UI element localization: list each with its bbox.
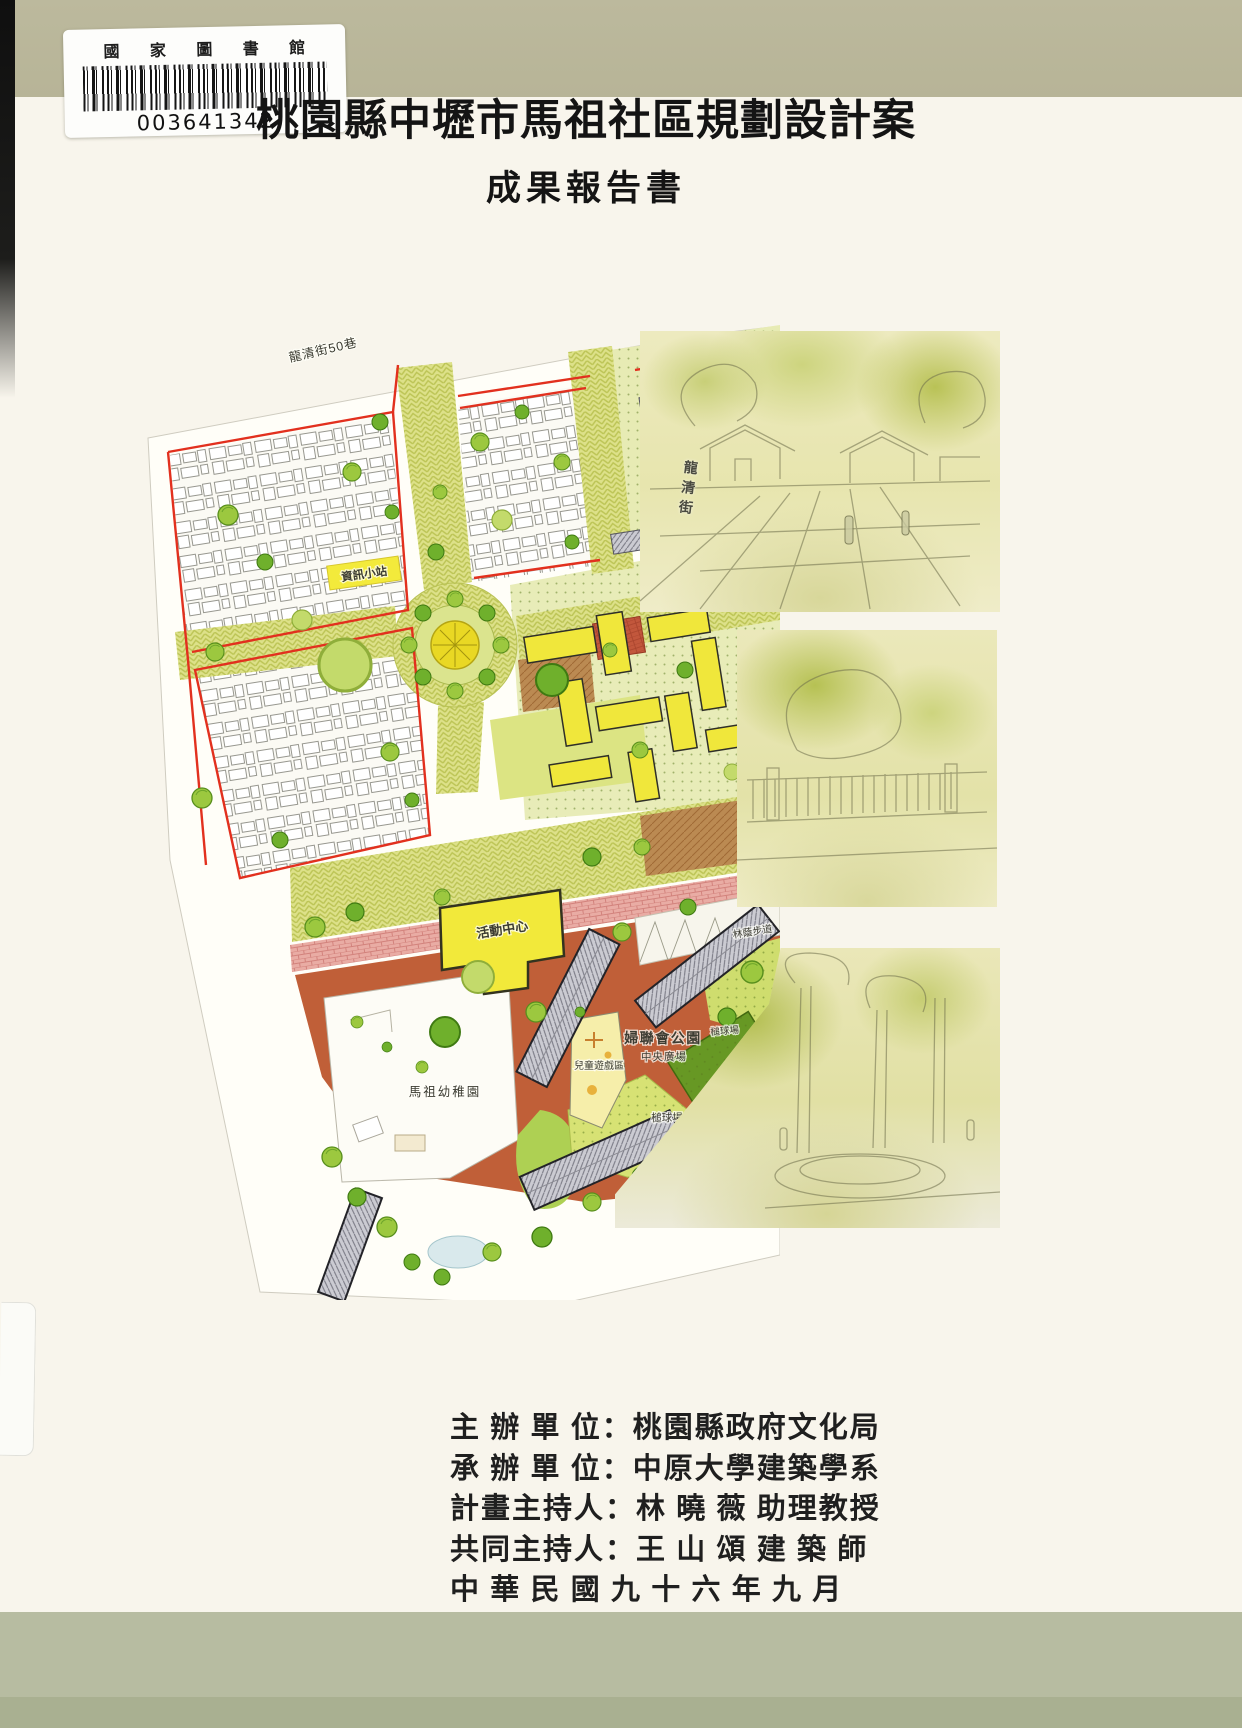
label-children-play: 兒童遊戲區 — [574, 1059, 624, 1072]
label-park-name: 婦聯會公園 — [623, 1030, 702, 1046]
label-central-plaza: 中央廣場 — [641, 1050, 687, 1063]
library-side-sticker — [0, 1302, 36, 1457]
label-kindergarten: 馬祖幼稚園 — [409, 1084, 482, 1099]
library-name: 國 家 圖 書 館 — [63, 33, 345, 63]
credit-line-date: 中 華 民 國 九 十 六 年 九 月 — [450, 1570, 881, 1611]
credit-line-organizer: 主 辦 單 位：桃園縣政府文化局 — [450, 1408, 881, 1449]
credit-line-executor: 承 辦 單 位：中原大學建築學系 — [450, 1449, 881, 1490]
credit-line-principal: 計畫主持人：林 曉 薇 助理教授 — [450, 1489, 881, 1530]
label-croquet-upper: 槌球場 — [710, 1024, 740, 1038]
sketch-photo-fence-trees — [737, 630, 997, 907]
credits-block: 主 辦 單 位：桃園縣政府文化局 承 辦 單 位：中原大學建築學系 計畫主持人：… — [450, 1408, 881, 1611]
label-street-top: 龍清街50巷 — [287, 335, 358, 365]
report-title: 桃園縣中壢市馬祖社區規劃設計案 — [0, 86, 1242, 148]
credit-line-co-principal: 共同主持人：王 山 頌 建 築 師 — [450, 1530, 881, 1571]
report-cover-page: 國 家 圖 書 館 003641342 桃園縣中壢市馬祖社區規劃設計案 成果報告… — [0, 0, 1242, 1728]
cover-band-bottom-dark — [0, 1697, 1242, 1728]
report-subtitle: 成果報告書 — [0, 160, 1242, 211]
